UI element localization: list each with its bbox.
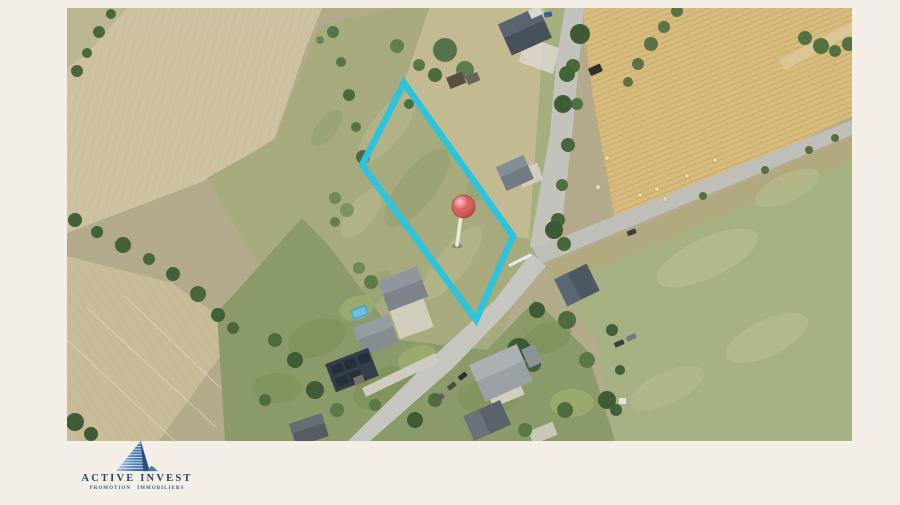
company-logo: ACTIVE INVEST PROMOTION IMMOBILIERS (72, 441, 202, 491)
aerial-photo[interactable] (67, 8, 852, 441)
pyramid-building-icon (116, 441, 158, 472)
company-tagline: PROMOTION IMMOBILIERS (72, 486, 202, 491)
company-name: ACTIVE INVEST (72, 473, 202, 484)
aerial-scene (67, 8, 852, 441)
